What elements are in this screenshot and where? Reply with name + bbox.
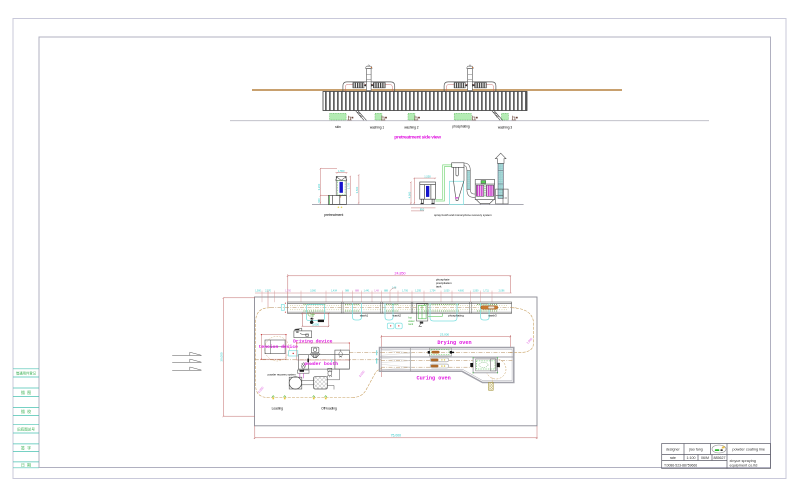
svg-text:powder coating line: powder coating line [732,447,765,451]
svg-text:1,500: 1,500 [255,291,261,293]
svg-text:900: 900 [317,198,321,203]
svg-text:1,030: 1,030 [444,291,450,293]
svg-text:tank: tank [408,322,414,326]
svg-text:1,500: 1,500 [473,291,479,293]
svg-text:1,550: 1,550 [338,169,345,173]
svg-text:1,441: 1,441 [364,291,370,293]
svg-text:Curing oven: Curing oven [416,376,450,382]
svg-text:1,48: 1,48 [374,291,379,293]
svg-text:1,734: 1,734 [430,291,436,293]
svg-text:xinyue spraying: xinyue spraying [730,459,756,463]
svg-text:tension device: tension device [259,344,299,350]
svg-text:washing 3: washing 3 [498,126,513,130]
svg-text:skin: skin [335,125,341,129]
svg-text:spray booth and monocyclone re: spray booth and monocyclone recovery sys… [434,213,492,217]
svg-text:30,000: 30,000 [220,352,224,362]
svg-text:1,700: 1,700 [285,291,291,293]
svg-text:powder recovery system: powder recovery system [268,373,296,377]
svg-text:Drying oven: Drying oven [437,340,471,346]
svg-text:1:100: 1:100 [687,456,696,460]
svg-text:描 图: 描 图 [21,389,31,395]
svg-text:885627: 885627 [714,456,726,460]
svg-text:75,000: 75,000 [391,434,401,438]
svg-text:designer: designer [666,447,681,451]
svg-text:2,096: 2,096 [499,291,505,293]
svg-text:1,711: 1,711 [483,291,489,293]
svg-text:3,500: 3,500 [355,186,359,193]
svg-text:1,434: 1,434 [331,291,337,293]
svg-text:4,000: 4,000 [408,191,412,198]
svg-text:Off-loading: Off-loading [321,406,337,410]
svg-text:washing 1: washing 1 [370,126,385,130]
svg-text:24,850: 24,850 [395,272,406,276]
svg-text:旧底图总号: 旧底图总号 [17,427,35,432]
svg-text:Driving device: Driving device [293,339,333,345]
svg-text:1,706: 1,706 [402,291,408,293]
svg-text:T:0086-523-88759666: T:0086-523-88759666 [664,463,697,467]
svg-text:wash2: wash2 [393,314,402,318]
svg-text:washing 2: washing 2 [404,126,419,130]
svg-text:签 字: 签 字 [21,444,31,450]
svg-text:wash1: wash1 [360,314,369,318]
svg-text:2,270: 2,270 [265,291,271,293]
svg-text:1,550: 1,550 [424,174,431,178]
svg-text:借通用件登记: 借通用件登记 [16,371,37,376]
svg-text:jiao fang: jiao fang [688,447,703,451]
svg-text:tank: tank [436,285,442,289]
svg-text:equipment co.ltd: equipment co.ltd [730,463,758,467]
svg-text:850: 850 [420,207,425,211]
svg-text:phosphating: phosphating [448,314,464,318]
svg-text:powder booth: powder booth [304,361,338,367]
svg-text:Loading: Loading [272,406,284,410]
svg-text:06/M: 06/M [701,456,709,460]
svg-text:rate: rate [670,456,676,460]
svg-text:3,200: 3,200 [317,183,321,190]
svg-text:23,000: 23,000 [440,332,450,336]
svg-text:wash3: wash3 [488,314,497,318]
svg-text:日 期: 日 期 [21,461,31,467]
svg-text:pretreatment: pretreatment [324,213,343,217]
svg-text:1,750: 1,750 [347,182,351,189]
svg-text:4,600: 4,600 [458,291,464,293]
svg-text:描 校: 描 校 [21,408,31,414]
svg-text:1,295: 1,295 [415,291,421,293]
svg-text:phosphating: phosphating [452,125,470,129]
svg-text:pretreatment side view: pretreatment side view [394,134,441,140]
svg-text:3,000: 3,000 [312,323,319,327]
svg-text:3,000: 3,000 [310,291,316,293]
